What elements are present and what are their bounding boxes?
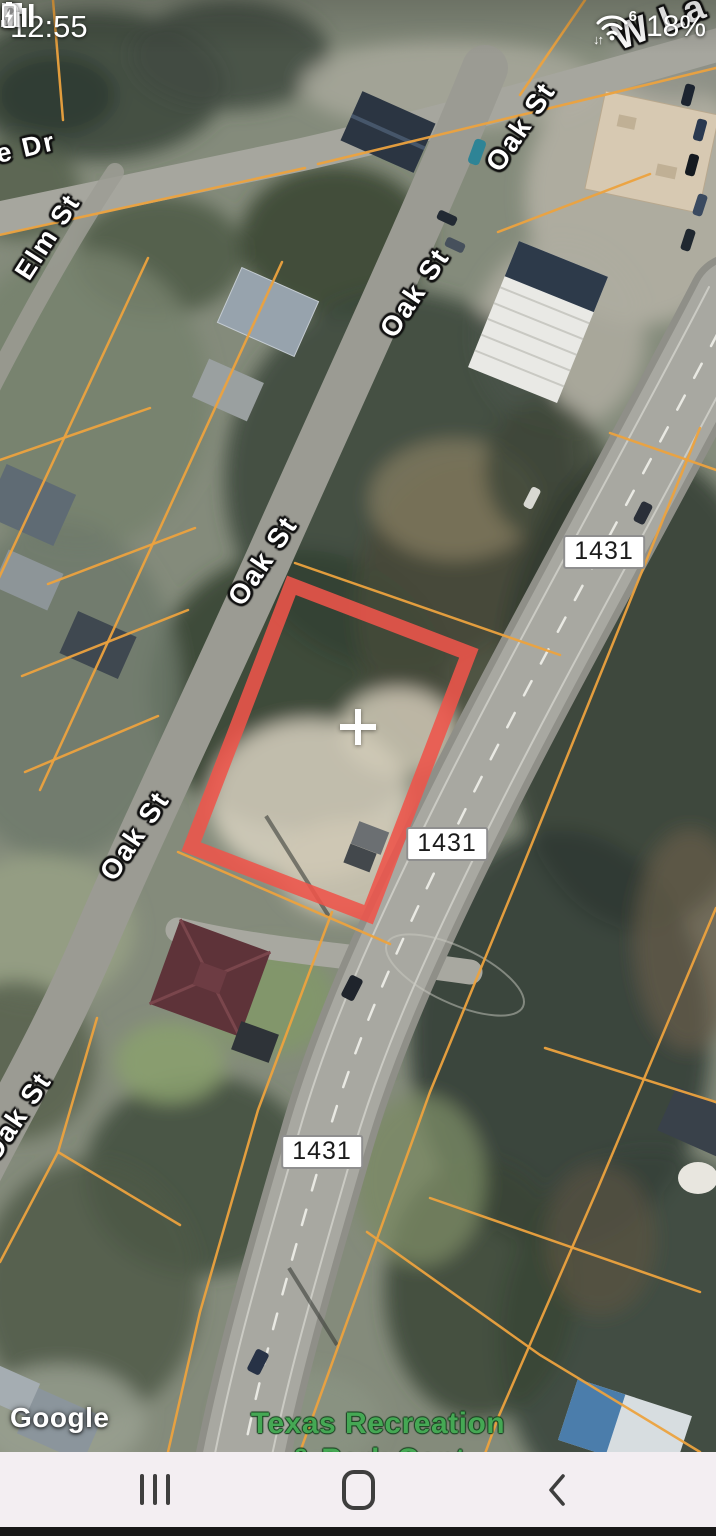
route-shield-1431-top: 1431 <box>563 535 645 569</box>
battery-charging-icon <box>0 0 18 30</box>
recents-bar-icon <box>153 1474 157 1505</box>
battery-percent: 18% <box>646 10 706 44</box>
satellite-map[interactable]: e Dr Elm St Oak St Oak St Oak St Oak St … <box>0 0 716 1452</box>
wifi-activity-arrows: ↓↑ <box>593 32 602 47</box>
screen-bottom-strip <box>0 1527 716 1536</box>
home-button[interactable] <box>313 1452 403 1527</box>
poi-label-texas-recreation: Texas Recreation & Park Cent <box>148 1406 608 1452</box>
recents-button[interactable] <box>110 1452 200 1527</box>
home-icon <box>342 1470 375 1510</box>
poi-label-line2: & Park Cent <box>148 1442 608 1452</box>
back-chevron-icon <box>546 1473 568 1507</box>
route-shield-1431-bottom: 1431 <box>281 1135 363 1169</box>
google-watermark: Google <box>10 1402 109 1434</box>
phone-screen: e Dr Elm St Oak St Oak St Oak St Oak St … <box>0 0 716 1536</box>
back-button[interactable] <box>512 1452 602 1527</box>
recents-bar-icon <box>140 1474 144 1505</box>
route-shield-1431-middle: 1431 <box>406 827 488 861</box>
recents-bar-icon <box>166 1474 170 1505</box>
poi-label-line1: Texas Recreation <box>148 1406 608 1442</box>
status-bar: 12:55 <box>0 0 716 54</box>
map-center-marker <box>340 709 376 745</box>
wifi6-icon: 6 ↓↑ <box>595 10 637 44</box>
wifi-standard-badge: 6 <box>629 8 637 25</box>
android-nav-bar <box>0 1452 716 1527</box>
